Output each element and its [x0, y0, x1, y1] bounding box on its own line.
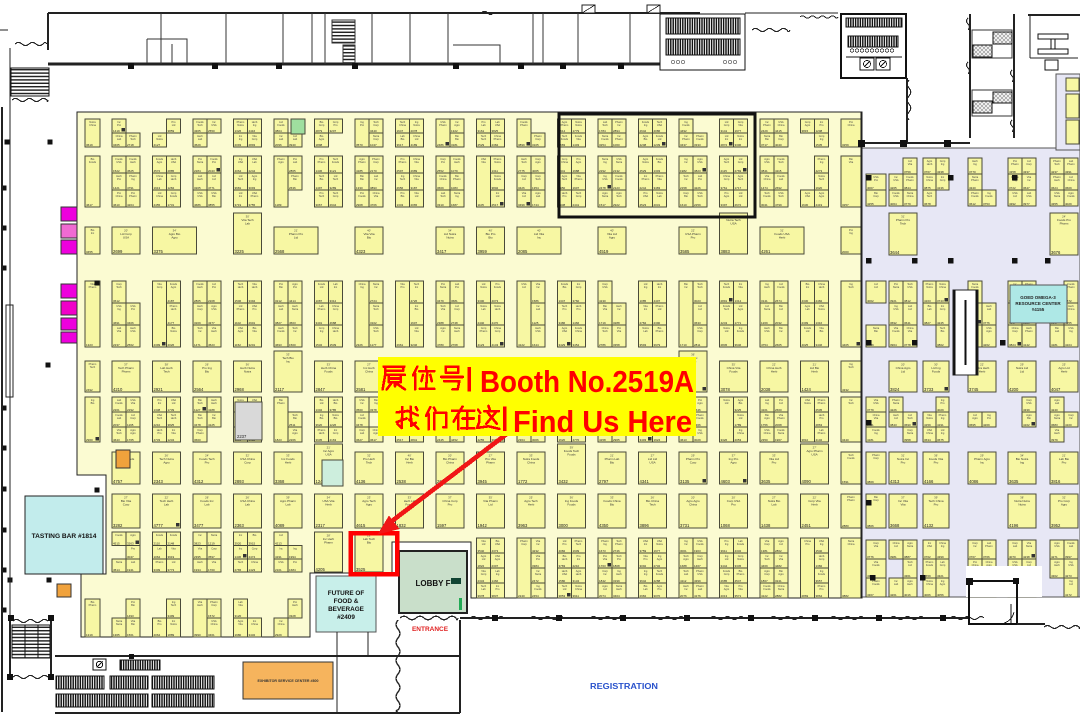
svg-text:Ing: Ing: [941, 431, 945, 435]
svg-text:2440: 2440: [478, 321, 485, 325]
svg-text:Foods: Foods: [985, 194, 993, 198]
svg-text:Vita: Vita: [603, 307, 608, 311]
svg-text:3802: 3802: [937, 343, 944, 347]
svg-text:2674: 2674: [775, 299, 782, 303]
svg-text:Agro: Agro: [724, 587, 730, 591]
svg-text:Vita: Vita: [171, 431, 176, 435]
svg-text:3479: 3479: [437, 299, 444, 303]
svg-text:4191: 4191: [937, 423, 944, 427]
svg-text:4082: 4082: [559, 549, 566, 553]
svg-text:China: China: [926, 582, 933, 586]
svg-text:Nutra: Nutra: [156, 137, 163, 141]
svg-text:Agro: Agro: [130, 533, 136, 537]
svg-text:Foods: Foods: [763, 587, 771, 591]
svg-text:3920: 3920: [235, 541, 242, 545]
svg-text:Foods: Foods: [534, 587, 542, 591]
svg-text:Foods: Foods: [729, 369, 738, 373]
svg-text:Ltd: Ltd: [294, 235, 299, 239]
svg-text:3571: 3571: [735, 594, 742, 598]
svg-text:USA: USA: [764, 160, 770, 164]
svg-text:Lab: Lab: [164, 502, 169, 506]
svg-text:Nutra: Nutra: [197, 160, 204, 164]
svg-text:Pharm: Pharm: [642, 177, 650, 181]
svg-text:Lab: Lab: [117, 137, 122, 141]
svg-text:Vita: Vita: [738, 587, 743, 591]
svg-text:4240: 4240: [1051, 408, 1058, 412]
svg-text:1739: 1739: [168, 408, 175, 412]
svg-text:1789: 1789: [735, 423, 742, 427]
svg-text:Agro: Agro: [683, 557, 689, 561]
svg-text:2505: 2505: [816, 408, 823, 412]
svg-text:USA: USA: [811, 452, 817, 456]
svg-text:2732: 2732: [654, 564, 661, 568]
svg-text:2944: 2944: [330, 203, 337, 207]
svg-text:Ltd: Ltd: [482, 542, 486, 546]
svg-text:Pro: Pro: [131, 307, 136, 311]
svg-text:Pro: Pro: [117, 177, 122, 181]
svg-text:4688: 4688: [330, 321, 337, 325]
svg-text:Nutra: Nutra: [1054, 416, 1061, 420]
svg-text:Lab: Lab: [360, 431, 365, 435]
svg-text:2672: 2672: [735, 203, 742, 207]
svg-text:Bio: Bio: [205, 369, 210, 373]
svg-text:Corp: Corp: [940, 307, 946, 311]
svg-text:Tech: Tech: [900, 221, 907, 225]
svg-text:4799: 4799: [775, 203, 782, 207]
svg-text:3690: 3690: [904, 423, 911, 427]
svg-text:Lab: Lab: [157, 546, 162, 550]
svg-text:Nutra: Nutra: [778, 431, 785, 435]
svg-text:Tech: Tech: [373, 329, 379, 333]
svg-text:3617: 3617: [370, 438, 377, 442]
svg-text:Ing: Ing: [320, 329, 324, 333]
svg-text:2445: 2445: [437, 438, 444, 442]
svg-text:Ltd: Ltd: [739, 416, 743, 420]
svg-text:2026: 2026: [168, 343, 175, 347]
svg-text:Nutra: Nutra: [778, 587, 785, 591]
svg-text:Pro: Pro: [333, 123, 338, 127]
svg-text:2013: 2013: [721, 594, 728, 598]
svg-text:Lab: Lab: [987, 307, 992, 311]
svg-text:4470: 4470: [492, 321, 499, 325]
svg-text:4226: 4226: [890, 408, 897, 412]
svg-text:Lab: Lab: [198, 137, 203, 141]
svg-text:2841: 2841: [411, 438, 418, 442]
svg-text:3597: 3597: [208, 555, 215, 559]
svg-text:3161: 3161: [478, 129, 485, 133]
svg-text:Pro: Pro: [212, 160, 217, 164]
svg-text:3743: 3743: [937, 299, 944, 303]
svg-text:3810: 3810: [802, 438, 809, 442]
svg-text:Pro: Pro: [448, 502, 453, 506]
svg-text:1269: 1269: [761, 321, 768, 325]
svg-text:1756: 1756: [761, 423, 768, 427]
svg-text:4452: 4452: [451, 438, 458, 442]
svg-text:1105: 1105: [478, 203, 485, 207]
svg-text:2053: 2053: [735, 438, 742, 442]
svg-text:Foods: Foods: [1067, 194, 1075, 198]
svg-text:Foods: Foods: [872, 563, 880, 567]
svg-text:China: China: [939, 285, 946, 289]
svg-text:Herb: Herb: [252, 285, 258, 289]
svg-text:1934: 1934: [194, 568, 201, 572]
svg-text:Pharm: Pharm: [122, 369, 131, 373]
svg-text:1436: 1436: [235, 555, 242, 559]
svg-text:4273: 4273: [816, 169, 823, 173]
svg-text:1127: 1127: [194, 408, 201, 412]
svg-text:4355: 4355: [1051, 202, 1058, 206]
svg-text:2132: 2132: [613, 169, 620, 173]
svg-text:4185: 4185: [356, 169, 363, 173]
svg-text:3199: 3199: [613, 579, 620, 583]
svg-text:Pharm: Pharm: [906, 178, 914, 182]
svg-text:USA: USA: [562, 572, 568, 576]
svg-text:4482: 4482: [775, 564, 782, 568]
svg-text:3289: 3289: [330, 186, 337, 190]
svg-text:Foods: Foods: [170, 533, 178, 537]
svg-text:Pro: Pro: [205, 460, 210, 464]
svg-text:3401: 3401: [316, 321, 323, 325]
svg-text:2086: 2086: [654, 129, 661, 133]
svg-text:Ing: Ing: [131, 177, 135, 181]
svg-text:3432: 3432: [559, 479, 569, 484]
svg-text:3915: 3915: [249, 541, 256, 545]
svg-text:3624: 3624: [1051, 186, 1058, 190]
svg-text:4338: 4338: [937, 170, 944, 174]
svg-text:Agro: Agro: [819, 194, 825, 198]
svg-text:2797: 2797: [599, 479, 609, 484]
svg-text:Corp: Corp: [697, 329, 703, 333]
svg-text:Foods: Foods: [567, 452, 576, 456]
svg-text:4002: 4002: [867, 299, 874, 303]
svg-text:3465: 3465: [113, 143, 120, 147]
svg-text:Ing: Ing: [239, 137, 243, 141]
svg-text:Lab: Lab: [481, 587, 486, 591]
svg-text:2961: 2961: [397, 343, 404, 347]
svg-text:4312: 4312: [194, 479, 204, 484]
svg-text:Pro: Pro: [562, 307, 567, 311]
svg-text:Corp: Corp: [197, 307, 203, 311]
svg-text:Pharm: Pharm: [763, 123, 771, 127]
svg-text:2805: 2805: [194, 299, 201, 303]
svg-text:2872: 2872: [721, 143, 728, 147]
svg-text:1079: 1079: [451, 169, 458, 173]
svg-text:3921: 3921: [890, 299, 897, 303]
svg-text:Vita: Vita: [657, 177, 662, 181]
svg-text:3394: 3394: [249, 299, 256, 303]
svg-text:4529: 4529: [640, 169, 647, 173]
svg-text:1913: 1913: [154, 186, 161, 190]
svg-text:Ing: Ing: [253, 177, 257, 181]
svg-text:Pro: Pro: [805, 542, 810, 546]
svg-text:2395: 2395: [194, 555, 201, 559]
svg-text:Pharm: Pharm: [737, 572, 745, 576]
svg-text:1760: 1760: [208, 568, 215, 572]
svg-text:2123: 2123: [613, 186, 620, 190]
svg-text:2170: 2170: [370, 169, 377, 173]
svg-text:3620: 3620: [316, 423, 323, 427]
svg-text:4617: 4617: [86, 203, 93, 207]
svg-text:1710: 1710: [680, 343, 687, 347]
svg-text:4643: 4643: [113, 438, 120, 442]
svg-text:2862: 2862: [775, 549, 782, 553]
svg-text:Pro: Pro: [934, 502, 939, 506]
svg-text:3205: 3205: [194, 186, 201, 190]
svg-text:2562: 2562: [127, 343, 134, 347]
svg-text:2845: 2845: [721, 343, 728, 347]
svg-text:Ltd: Ltd: [496, 194, 500, 198]
svg-text:1763: 1763: [599, 564, 606, 568]
svg-text:3802: 3802: [492, 186, 499, 190]
svg-text:3824: 3824: [1009, 343, 1016, 347]
svg-text:4337: 4337: [1023, 170, 1030, 174]
svg-text:Tech: Tech: [576, 542, 582, 546]
svg-text:3919: 3919: [168, 555, 175, 559]
svg-text:Ltd: Ltd: [894, 416, 898, 420]
svg-text:Nutra: Nutra: [1026, 544, 1033, 548]
svg-text:USA: USA: [649, 460, 655, 464]
svg-text:Tech: Tech: [562, 177, 568, 181]
svg-text:Foods: Foods: [892, 329, 900, 333]
svg-text:Pro: Pro: [934, 460, 939, 464]
svg-text:Ltd: Ltd: [522, 194, 526, 198]
svg-text:4321: 4321: [937, 574, 944, 578]
svg-text:Herb: Herb: [907, 582, 913, 586]
svg-text:1419: 1419: [113, 129, 120, 133]
svg-text:Foods: Foods: [971, 285, 979, 289]
svg-text:Ing: Ing: [1069, 329, 1073, 333]
svg-text:Tech: Tech: [724, 307, 730, 311]
svg-text:Tech: Tech: [697, 285, 703, 289]
svg-text:2529: 2529: [478, 143, 485, 147]
svg-text:3263: 3263: [127, 541, 134, 545]
svg-text:1673: 1673: [599, 549, 606, 553]
svg-text:Tech: Tech: [697, 194, 703, 198]
svg-text:4136: 4136: [356, 479, 366, 484]
svg-text:4166: 4166: [924, 479, 934, 484]
svg-text:Pharm: Pharm: [615, 137, 623, 141]
svg-text:3812: 3812: [904, 299, 911, 303]
svg-text:4726: 4726: [411, 299, 418, 303]
svg-text:3958: 3958: [904, 438, 911, 442]
svg-text:Tech: Tech: [373, 307, 379, 311]
svg-text:Agro: Agro: [805, 123, 811, 127]
svg-text:Vita: Vita: [900, 502, 905, 506]
svg-text:China: China: [764, 177, 771, 181]
svg-text:1060: 1060: [613, 143, 620, 147]
svg-text:3309: 3309: [154, 568, 161, 572]
svg-text:3859: 3859: [168, 129, 175, 133]
svg-text:Tech: Tech: [333, 177, 339, 181]
svg-text:China: China: [907, 194, 914, 198]
svg-text:Agro: Agro: [657, 557, 663, 561]
svg-text:3945: 3945: [478, 479, 488, 484]
svg-text:Foods: Foods: [277, 123, 285, 127]
svg-text:2350: 2350: [761, 438, 768, 442]
svg-text:4016: 4016: [904, 593, 911, 597]
svg-text:Lab: Lab: [245, 221, 250, 225]
svg-text:Foods: Foods: [358, 194, 366, 198]
svg-text:3633: 3633: [694, 321, 701, 325]
svg-text:USA: USA: [602, 177, 608, 181]
svg-text:4196: 4196: [1009, 523, 1019, 528]
svg-text:4706: 4706: [370, 203, 377, 207]
svg-text:1644: 1644: [532, 343, 539, 347]
svg-text:USA: USA: [927, 544, 933, 548]
svg-text:1438: 1438: [761, 523, 771, 528]
svg-text:4416: 4416: [249, 129, 256, 133]
svg-text:3181: 3181: [451, 143, 458, 147]
svg-text:3328: 3328: [289, 614, 296, 618]
svg-text:4123: 4123: [478, 343, 485, 347]
svg-text:Foods: Foods: [358, 416, 366, 420]
svg-text:Pharm: Pharm: [277, 401, 285, 405]
svg-text:3070: 3070: [654, 594, 661, 598]
svg-text:Herb: Herb: [779, 235, 786, 239]
svg-text:Ltd: Ltd: [725, 329, 729, 333]
svg-text:2880: 2880: [842, 524, 849, 528]
svg-text:Foods: Foods: [926, 563, 934, 567]
svg-text:USA: USA: [325, 452, 331, 456]
svg-text:Tech: Tech: [778, 160, 784, 164]
svg-text:Ing: Ing: [117, 307, 121, 311]
svg-text:3641: 3641: [904, 321, 911, 325]
svg-text:Pharm: Pharm: [318, 307, 326, 311]
svg-text:3134: 3134: [573, 579, 580, 583]
svg-text:3306: 3306: [735, 143, 742, 147]
svg-text:4040: 4040: [775, 143, 782, 147]
svg-text:2288: 2288: [654, 579, 661, 583]
svg-text:3675: 3675: [937, 438, 944, 442]
svg-text:USA: USA: [893, 307, 899, 311]
svg-text:Tech: Tech: [197, 401, 203, 405]
svg-text:Vita: Vita: [238, 603, 243, 607]
svg-text:Pro: Pro: [360, 123, 365, 127]
svg-text:Tech: Tech: [819, 177, 825, 181]
svg-text:Herb: Herb: [197, 560, 203, 564]
svg-text:3207: 3207: [330, 129, 337, 133]
svg-text:2363: 2363: [235, 523, 245, 528]
svg-text:Corp: Corp: [764, 572, 770, 576]
svg-text:Pro: Pro: [643, 557, 648, 561]
svg-text:4733: 4733: [154, 438, 161, 442]
svg-text:Pro: Pro: [1062, 460, 1067, 464]
svg-text:1365: 1365: [113, 633, 120, 637]
svg-text:3676: 3676: [1051, 250, 1061, 255]
svg-text:4025: 4025: [802, 343, 809, 347]
svg-text:Ltd: Ltd: [698, 307, 702, 311]
svg-text:Tech: Tech: [163, 369, 170, 373]
svg-text:3141: 3141: [761, 299, 768, 303]
svg-text:Tech: Tech: [848, 365, 854, 369]
svg-text:Pharm: Pharm: [251, 194, 259, 198]
svg-text:Foods: Foods: [115, 533, 123, 537]
svg-text:Pro: Pro: [901, 460, 906, 464]
svg-text:3525: 3525: [356, 567, 366, 572]
svg-text:Pharm: Pharm: [318, 160, 326, 164]
svg-text:Nutra: Nutra: [642, 160, 649, 164]
svg-text:4159: 4159: [924, 423, 931, 427]
svg-text:Ing: Ing: [455, 194, 459, 198]
svg-text:Ing: Ing: [374, 401, 378, 405]
svg-text:2769: 2769: [735, 169, 742, 173]
svg-text:Nutra: Nutra: [616, 160, 623, 164]
svg-text:Nutra: Nutra: [893, 285, 900, 289]
svg-text:3499: 3499: [518, 203, 525, 207]
svg-text:3825: 3825: [492, 129, 499, 133]
svg-text:2093: 2093: [235, 143, 242, 147]
svg-text:2163: 2163: [330, 438, 337, 442]
svg-text:1226: 1226: [330, 423, 337, 427]
svg-text:3483: 3483: [654, 186, 661, 190]
svg-text:1822: 1822: [478, 564, 485, 568]
svg-text:3585: 3585: [680, 249, 690, 254]
svg-text:Pharm: Pharm: [561, 123, 569, 127]
svg-text:3785: 3785: [330, 408, 337, 412]
svg-text:4089: 4089: [275, 523, 285, 528]
svg-text:Pro: Pro: [441, 160, 446, 164]
svg-text:3617: 3617: [397, 143, 404, 147]
svg-text:4771: 4771: [208, 186, 215, 190]
svg-text:Ltd: Ltd: [874, 285, 878, 289]
svg-text:Nutra: Nutra: [926, 416, 933, 420]
svg-text:USA: USA: [697, 160, 703, 164]
svg-text:China: China: [440, 177, 447, 181]
svg-text:3209: 3209: [194, 321, 201, 325]
svg-text:4358: 4358: [1009, 170, 1016, 174]
svg-text:Ing: Ing: [725, 542, 729, 546]
svg-text:Agro: Agro: [454, 123, 460, 127]
svg-text:1467: 1467: [694, 564, 701, 568]
svg-text:China: China: [778, 123, 785, 127]
svg-text:3326: 3326: [721, 438, 728, 442]
svg-text:2922: 2922: [613, 203, 620, 207]
svg-text:Pro: Pro: [495, 587, 500, 591]
svg-text:4213: 4213: [275, 541, 282, 545]
svg-text:3899: 3899: [518, 143, 525, 147]
svg-text:2326: 2326: [356, 343, 363, 347]
svg-text:Lab: Lab: [643, 329, 648, 333]
svg-text:1832: 1832: [397, 523, 407, 528]
svg-text:2474: 2474: [249, 555, 256, 559]
svg-text:2292: 2292: [127, 408, 134, 412]
svg-text:1382: 1382: [816, 564, 823, 568]
svg-text:1610: 1610: [680, 203, 687, 207]
svg-text:Herb: Herb: [562, 557, 568, 561]
svg-text:2894: 2894: [613, 129, 620, 133]
svg-text:Ltd: Ltd: [779, 307, 783, 311]
svg-text:4492: 4492: [680, 129, 687, 133]
svg-text:4090: 4090: [802, 479, 812, 484]
svg-text:China: China: [575, 587, 582, 591]
svg-text:Tech: Tech: [197, 416, 203, 420]
svg-text:4791: 4791: [127, 186, 134, 190]
svg-text:1234: 1234: [168, 438, 175, 442]
svg-text:Lab: Lab: [779, 177, 784, 181]
svg-text:1982: 1982: [680, 169, 687, 173]
svg-text:Tech: Tech: [116, 431, 122, 435]
svg-text:4122: 4122: [761, 594, 768, 598]
svg-text:4391: 4391: [1065, 170, 1072, 174]
svg-text:3429: 3429: [559, 343, 566, 347]
svg-text:3875: 3875: [924, 186, 931, 190]
svg-text:Agro: Agro: [778, 572, 784, 576]
svg-text:4307: 4307: [867, 593, 874, 597]
svg-text:Herb: Herb: [771, 369, 778, 373]
svg-text:Agro: Agro: [576, 160, 582, 164]
svg-text:2399: 2399: [802, 321, 809, 325]
svg-text:Agro: Agro: [278, 160, 284, 164]
